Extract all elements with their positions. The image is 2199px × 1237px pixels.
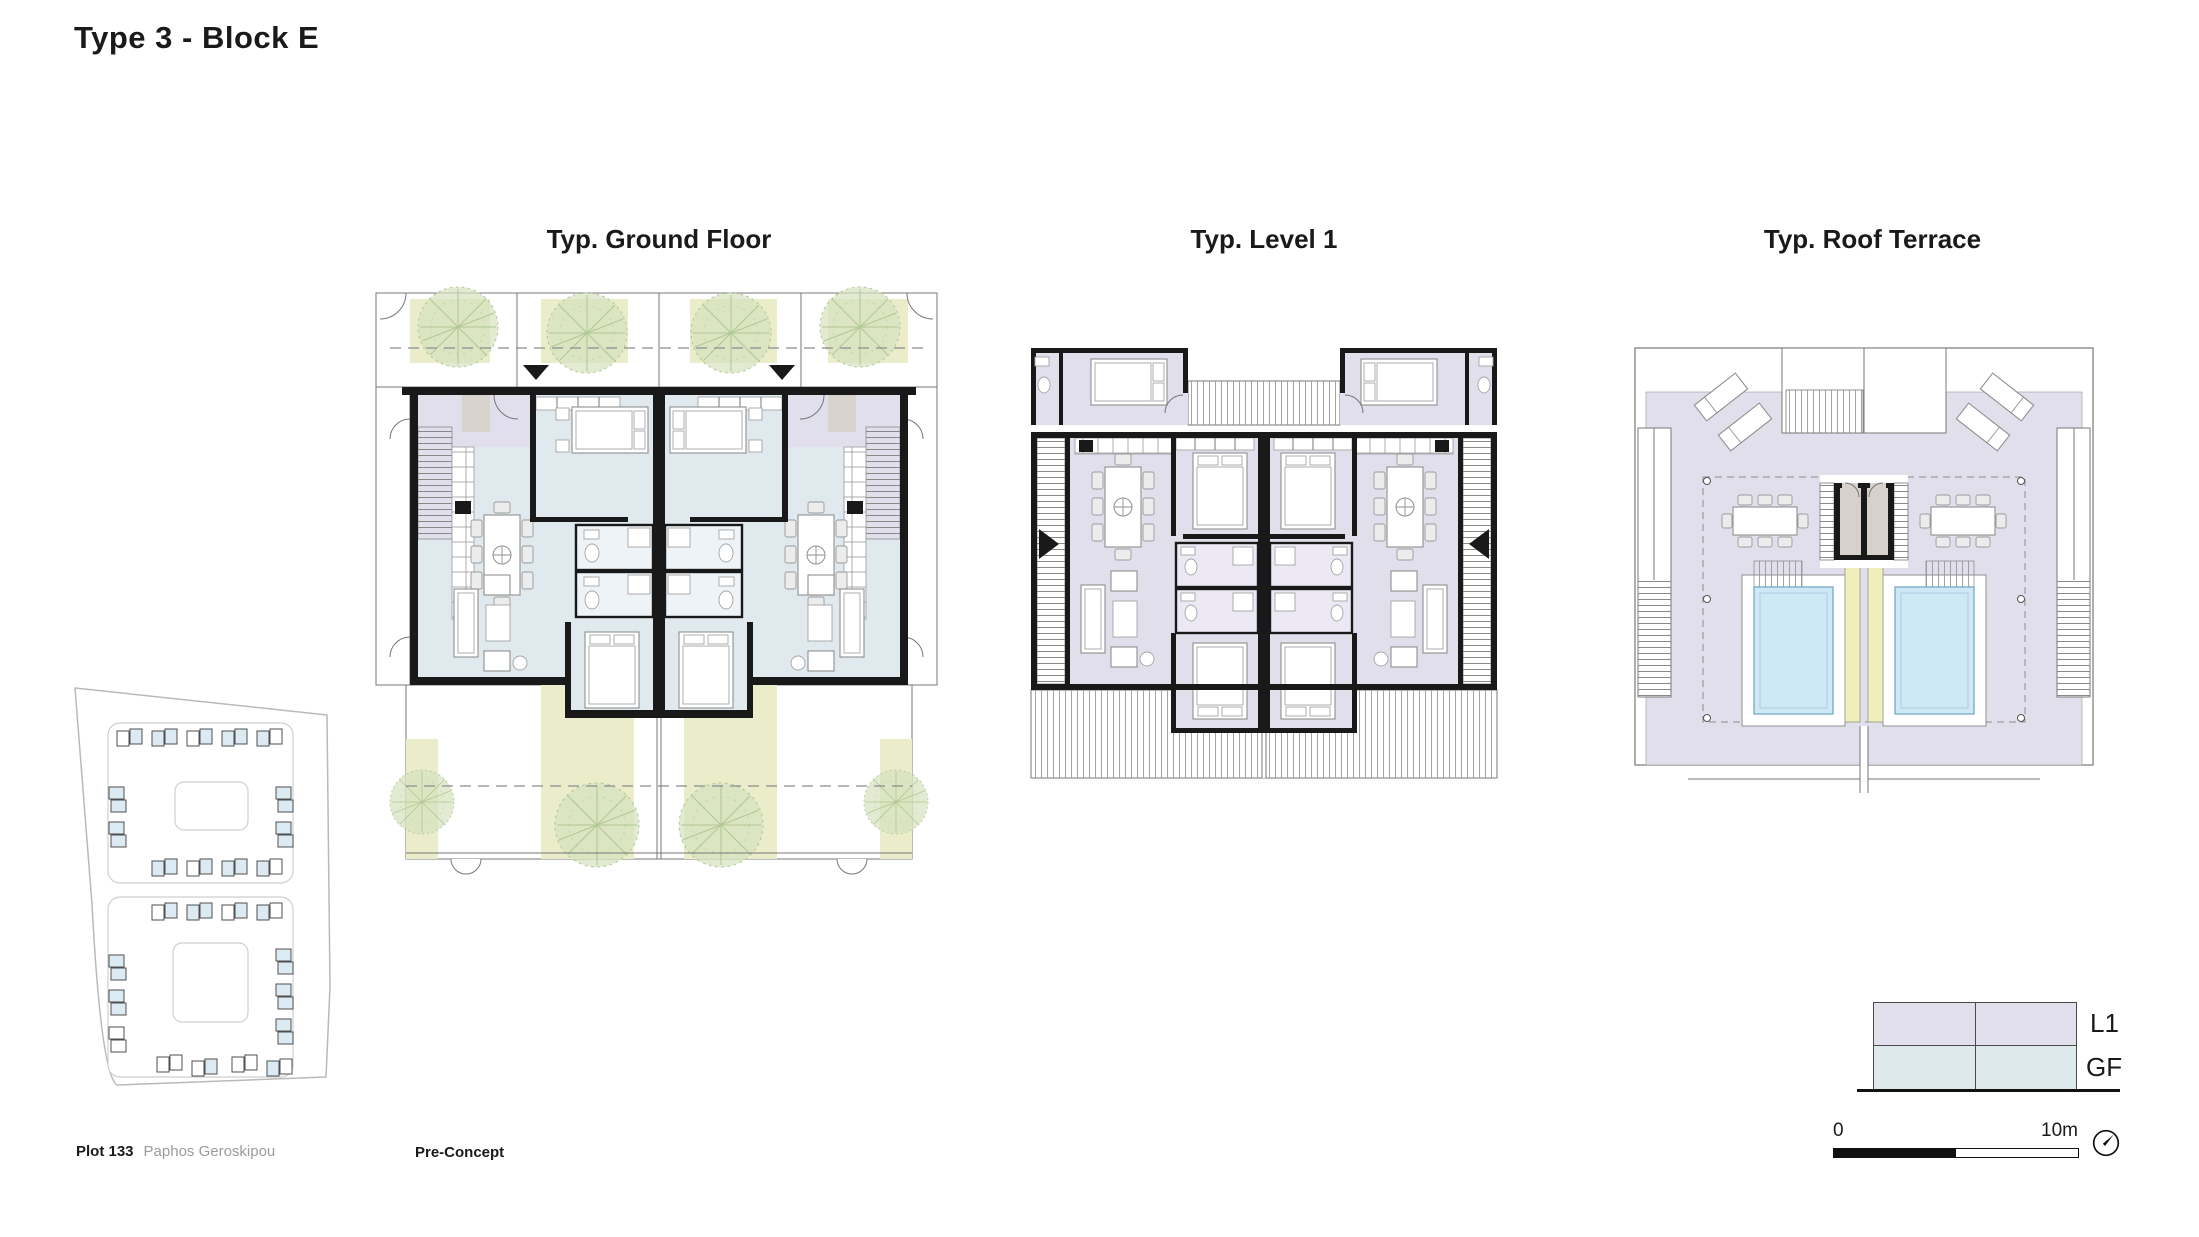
plot-location: Paphos Geroskipou xyxy=(144,1143,276,1160)
legend-ground-line xyxy=(1857,1089,2120,1092)
scale-end-label: 10m xyxy=(2028,1120,2078,1142)
stair-run xyxy=(1786,390,1863,433)
legend-swatch-l1 xyxy=(1874,1003,1976,1045)
front-terrace-garden xyxy=(376,287,937,387)
garden-gate xyxy=(837,859,867,874)
ground-floor-plan xyxy=(376,287,937,874)
roof-terrace-plan xyxy=(1635,348,2093,793)
side-yard xyxy=(903,387,937,685)
stair-core xyxy=(1820,475,1908,568)
plot-caption: Plot 133Paphos Geroskipou xyxy=(76,1143,275,1160)
side-yard xyxy=(376,387,410,685)
drawing-sheet: Type 3 - Block E Typ. Ground Floor Typ. … xyxy=(0,0,2199,1237)
storey-legend xyxy=(1873,1002,2077,1090)
gf-unit-right xyxy=(659,390,908,718)
scale-bar-fill xyxy=(1834,1149,1956,1157)
plot-number: Plot 133 xyxy=(76,1143,134,1160)
roof-deck xyxy=(1646,392,2082,765)
site-key-plan xyxy=(75,688,330,1085)
gf-unit-left xyxy=(410,390,659,718)
project-stage: Pre-Concept xyxy=(415,1144,504,1161)
legend-row-l1 xyxy=(1874,1003,2076,1046)
garden-gate xyxy=(451,859,481,874)
legend-row-gf xyxy=(1874,1046,2076,1089)
level-1-plan xyxy=(1031,348,1497,778)
legend-swatch-gf xyxy=(1976,1046,2077,1089)
drawing-canvas xyxy=(0,0,2199,1237)
legend-label-l1: L1 xyxy=(2090,1008,2119,1039)
legend-swatch-l1 xyxy=(1976,1003,2077,1045)
scale-bar xyxy=(1833,1148,2079,1158)
legend-swatch-gf xyxy=(1874,1046,1976,1089)
north-arrow-icon xyxy=(2092,1129,2120,1157)
legend-label-gf: GF xyxy=(2086,1052,2122,1083)
scale-start-label: 0 xyxy=(1833,1120,1844,1142)
